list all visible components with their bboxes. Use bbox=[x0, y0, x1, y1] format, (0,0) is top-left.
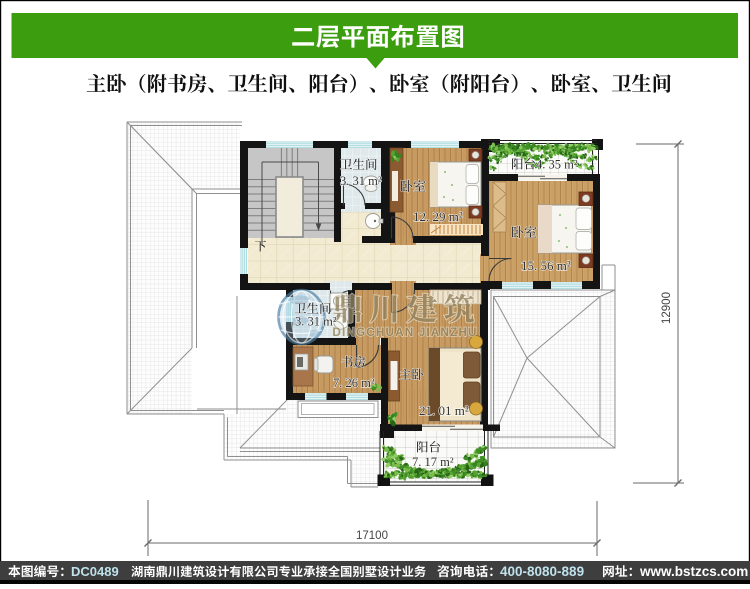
svg-text:15. 56 m²: 15. 56 m² bbox=[521, 258, 571, 273]
svg-text:3. 31 m²: 3. 31 m² bbox=[340, 174, 382, 188]
svg-text:7. 26 m²: 7. 26 m² bbox=[333, 376, 375, 390]
svg-text:www.bstzcs.com: www.bstzcs.com bbox=[639, 564, 748, 579]
svg-text:12900: 12900 bbox=[661, 292, 673, 324]
svg-text:12. 29 m²: 12. 29 m² bbox=[413, 209, 463, 224]
svg-text:4. 35 m²: 4. 35 m² bbox=[536, 158, 578, 172]
svg-text:400-8080-889: 400-8080-889 bbox=[500, 564, 584, 579]
svg-text:17100: 17100 bbox=[356, 530, 388, 542]
svg-text:21. 01 m²: 21. 01 m² bbox=[419, 403, 469, 418]
svg-text:3. 31 m²: 3. 31 m² bbox=[295, 315, 337, 329]
svg-text:7. 17 m²: 7. 17 m² bbox=[412, 455, 454, 469]
svg-text:DINGCHUAN JIANZHU: DINGCHUAN JIANZHU bbox=[332, 325, 477, 339]
svg-text:DC0489: DC0489 bbox=[71, 564, 119, 579]
